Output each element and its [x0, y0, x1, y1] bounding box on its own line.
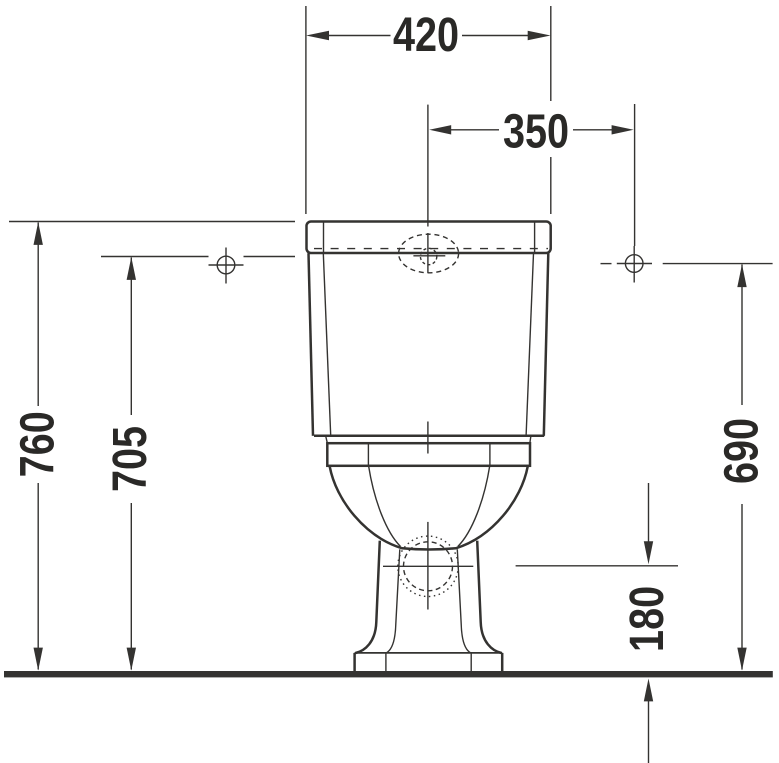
svg-text:760: 760 [11, 411, 65, 477]
svg-text:690: 690 [715, 418, 769, 484]
svg-text:180: 180 [620, 586, 674, 652]
svg-text:705: 705 [103, 426, 157, 492]
svg-text:350: 350 [503, 105, 569, 159]
svg-text:420: 420 [393, 8, 459, 62]
